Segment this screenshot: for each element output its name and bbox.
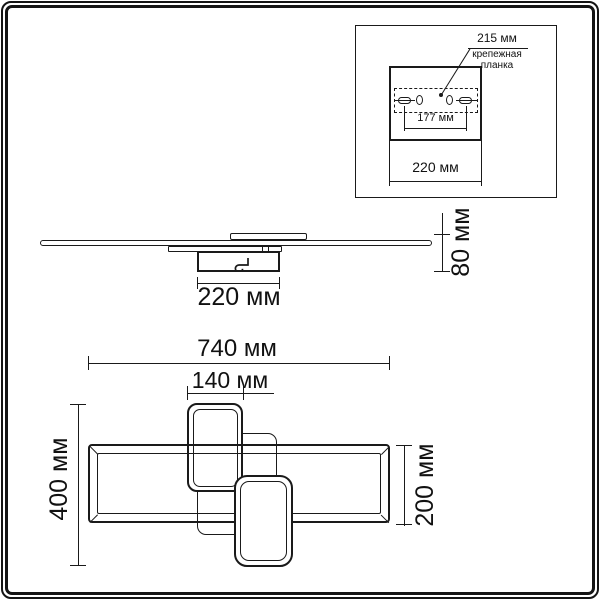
- cable-hook-icon: [232, 257, 250, 272]
- screw-hole-left-icon: [416, 95, 423, 105]
- slot-left-axis: [394, 100, 415, 101]
- inset-dim-220-label: 220 мм: [389, 160, 482, 175]
- dim-740-line: [88, 363, 390, 364]
- dim-740-label: 740 мм: [157, 336, 317, 361]
- dim-400-line: [78, 404, 79, 566]
- inset-dim-220-line: [389, 181, 482, 182]
- dim-215-label: 215 мм: [460, 32, 534, 45]
- bottom-frame-inner: [240, 481, 287, 561]
- dim-400-label: 400 мм: [46, 429, 72, 529]
- dim-177-line: [404, 128, 467, 129]
- dim-80-label: 80 мм: [448, 204, 474, 280]
- dim-200-label: 200 мм: [412, 435, 438, 535]
- dim-177-label: 177 мм: [404, 113, 467, 125]
- side-upper-frame-bar: [230, 233, 307, 240]
- slot-right-axis: [456, 100, 477, 101]
- side-dim-220-label: 220 мм: [178, 284, 300, 310]
- mounting-plate-label: крепежная планка: [456, 50, 538, 71]
- mounting-plate-label-line1: крепежная: [472, 49, 522, 60]
- screw-hole-right-icon: [446, 95, 453, 105]
- mounting-plate-label-line2: планка: [481, 60, 514, 71]
- dim-80-line: [442, 213, 443, 272]
- dimension-drawing: 215 мм крепежная планка 177 мм 220 мм 22…: [0, 0, 600, 600]
- dim-140-label: 140 мм: [150, 368, 310, 392]
- dim-200-line: [404, 445, 405, 526]
